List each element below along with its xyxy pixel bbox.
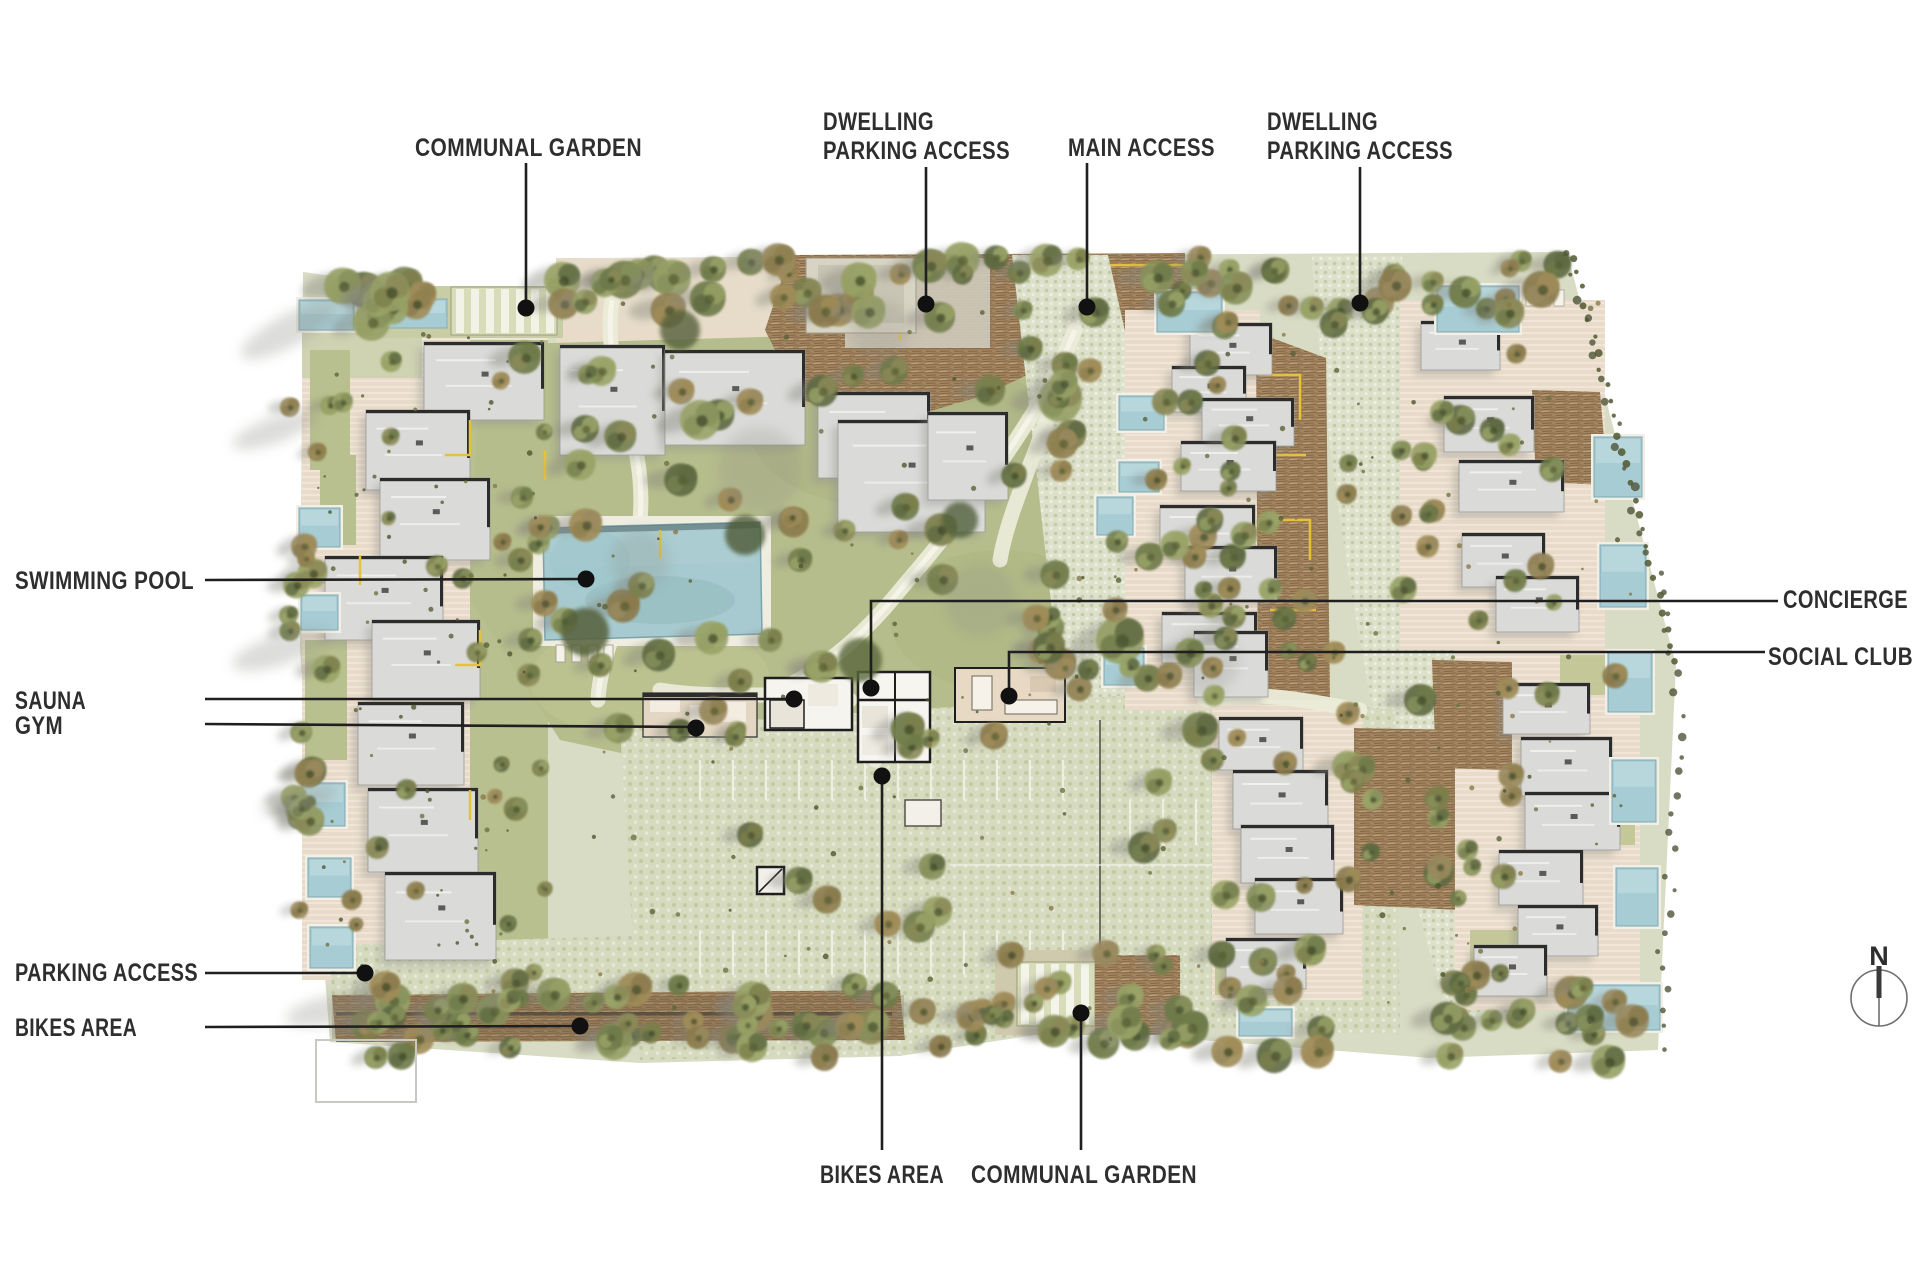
svg-text:GYM: GYM: [15, 712, 63, 740]
svg-text:PARKING ACCESS: PARKING ACCESS: [823, 137, 1010, 165]
svg-text:COMMUNAL GARDEN: COMMUNAL GARDEN: [415, 134, 642, 162]
svg-text:SWIMMING POOL: SWIMMING POOL: [15, 567, 194, 595]
svg-text:PARKING ACCESS: PARKING ACCESS: [15, 959, 198, 987]
svg-text:PARKING ACCESS: PARKING ACCESS: [1267, 137, 1453, 165]
svg-text:SOCIAL CLUB: SOCIAL CLUB: [1768, 643, 1913, 671]
svg-text:COMMUNAL GARDEN: COMMUNAL GARDEN: [971, 1161, 1197, 1189]
svg-text:DWELLING: DWELLING: [1267, 108, 1378, 136]
svg-text:BIKES AREA: BIKES AREA: [15, 1014, 137, 1042]
svg-text:SAUNA: SAUNA: [15, 687, 86, 715]
svg-text:DWELLING: DWELLING: [823, 108, 934, 136]
svg-text:BIKES AREA: BIKES AREA: [820, 1161, 944, 1189]
svg-text:MAIN ACCESS: MAIN ACCESS: [1068, 134, 1215, 162]
svg-text:CONCIERGE: CONCIERGE: [1783, 586, 1908, 614]
